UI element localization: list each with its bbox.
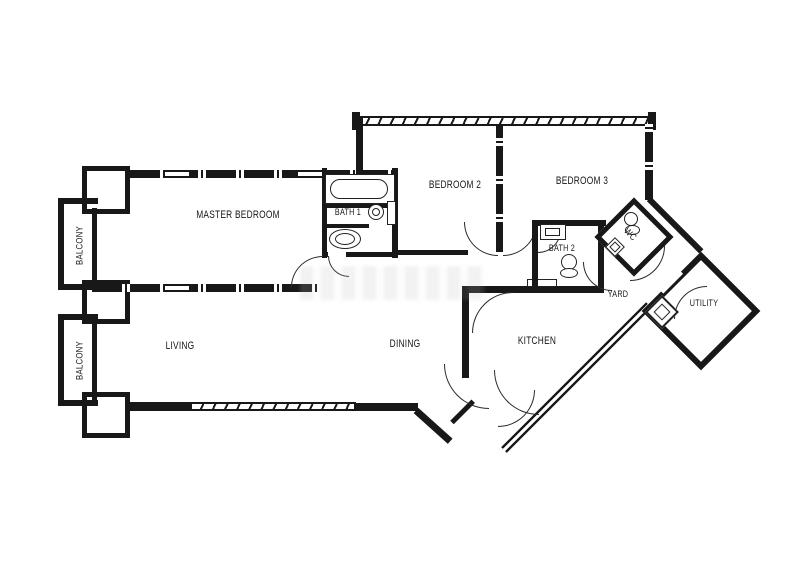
wall-bedroom2-bottom xyxy=(392,250,468,255)
window-divider xyxy=(165,284,189,292)
wall-entrance-diagonal-left xyxy=(414,408,453,444)
room-label-utility: UTILITY xyxy=(680,298,729,309)
wash-basin-bath2-bowl xyxy=(545,228,560,236)
door-arc-bedroom2 xyxy=(464,222,498,256)
room-label-bath1: BATH 1 xyxy=(331,207,364,218)
wall-balcony2-inner xyxy=(92,324,97,402)
wall-balcony2-top xyxy=(58,314,98,320)
wash-basin-bath1-bowl xyxy=(372,208,380,216)
floor-plan: MASTER BEDROOM BATH 1 BEDROOM 2 BEDROOM … xyxy=(0,0,800,566)
vanity-bath1 xyxy=(387,201,396,225)
room-label-balcony-lower: BALCONY xyxy=(75,324,86,396)
window-master-top-2 xyxy=(298,170,322,178)
window-wall-bedrooms-top xyxy=(356,116,654,126)
wall-bath1-divider2 xyxy=(323,224,369,228)
wall-connector xyxy=(356,116,363,174)
window-wall-living-bottom xyxy=(190,402,356,411)
wall-balcony1-top xyxy=(58,198,98,204)
wall-balcony1-left xyxy=(58,198,64,290)
room-label-living: LIVING xyxy=(150,340,211,352)
toilet-bath2-bowl xyxy=(560,268,578,278)
wall-living-bottom-left xyxy=(130,402,192,411)
window-master-top-1 xyxy=(165,170,189,178)
room-label-balcony-upper: BALCONY xyxy=(75,209,86,281)
wall-master-living-divider xyxy=(92,284,320,292)
toilet-bath1-bowl xyxy=(335,233,355,245)
wall-bedroom3-right xyxy=(645,124,653,200)
pier-3 xyxy=(82,392,130,438)
room-label-bath2: BATH 2 xyxy=(542,243,582,254)
door-arc-wc xyxy=(630,246,665,281)
room-label-master-bedroom: MASTER BEDROOM xyxy=(177,209,299,221)
wall-balcony1-inner xyxy=(92,208,97,286)
watermark xyxy=(300,266,485,300)
wall-balcony2-left xyxy=(58,314,64,406)
room-label-kitchen: KITCHEN xyxy=(505,335,569,347)
room-label-dining: DINING xyxy=(375,338,436,350)
wall-dining-bottom xyxy=(354,403,418,411)
room-label-bedroom2: BEDROOM 2 xyxy=(425,179,486,191)
room-label-bedroom3: BEDROOM 3 xyxy=(550,175,614,187)
pier-1 xyxy=(82,166,130,214)
bathtub xyxy=(330,179,388,199)
room-label-yard: YARD xyxy=(601,289,634,300)
